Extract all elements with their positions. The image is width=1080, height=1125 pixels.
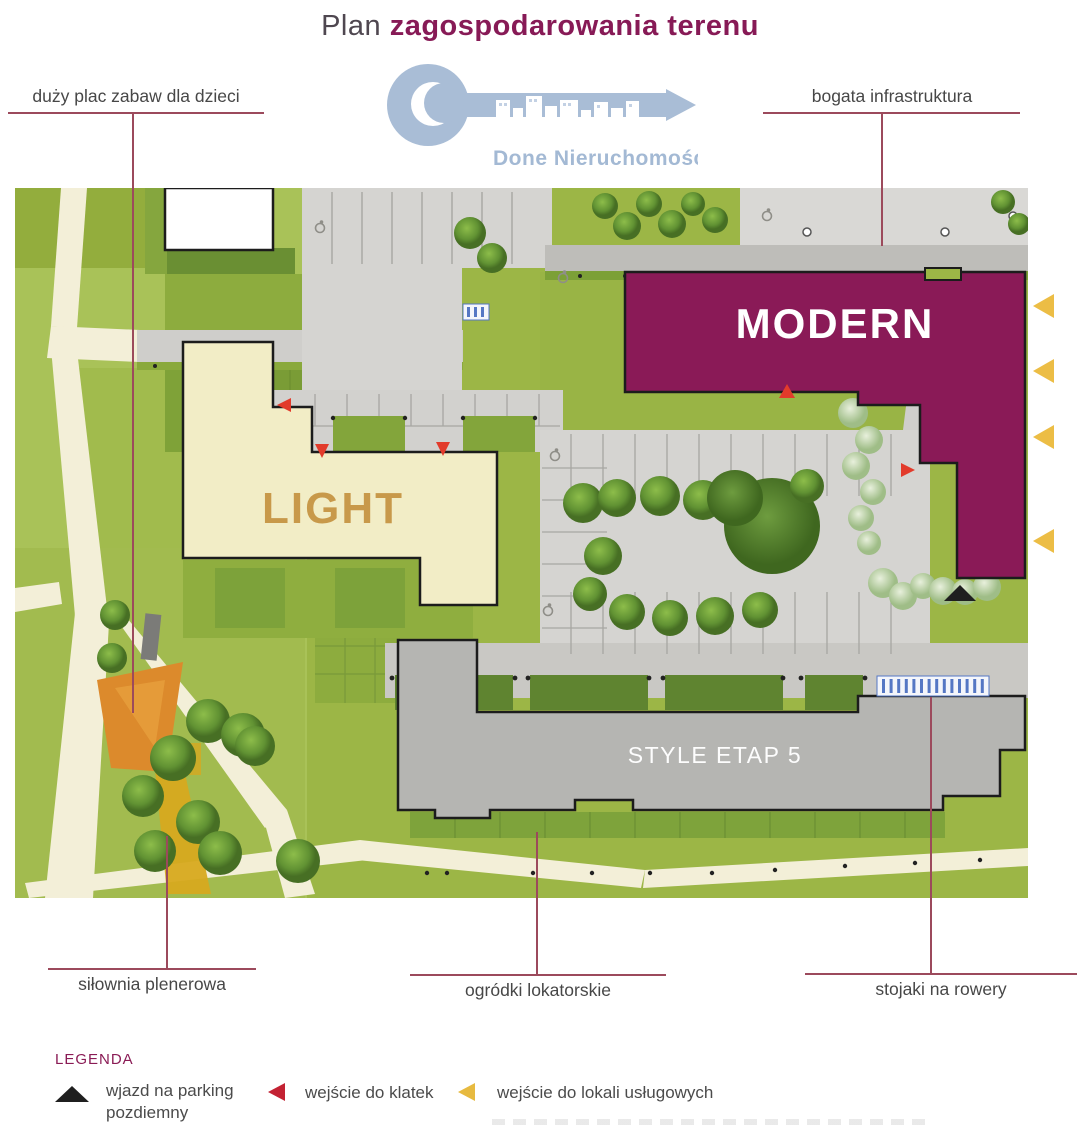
callout-infrastructure-line bbox=[763, 112, 1020, 114]
callout-playground-label: duży plac zabaw dla dzieci bbox=[0, 86, 272, 107]
legend-item-label: wjazd na parking pozdiemny bbox=[106, 1080, 264, 1125]
callout-bike-racks-pointer bbox=[930, 697, 932, 973]
service-entrance-arrow-icon bbox=[1033, 529, 1054, 553]
callout-infrastructure-label: bogata infrastruktura bbox=[763, 86, 1021, 107]
callout-tenant-gardens-pointer bbox=[536, 832, 538, 974]
site-plan-page: Plan zagospodarowania terenu bbox=[0, 0, 1080, 1125]
legend-item-label: wejście do lokali usługowych bbox=[497, 1082, 757, 1104]
key-city-logo-icon: Done Nieruchomości bbox=[383, 58, 698, 176]
callout-tenant-gardens-line bbox=[410, 974, 666, 976]
cropped-text-remnant bbox=[492, 1119, 930, 1125]
callout-outdoor-gym-label: siłownia plenerowa bbox=[40, 974, 264, 995]
service-entrance-arrow-icon bbox=[1033, 359, 1054, 383]
staircase-entrance-legend-icon bbox=[268, 1083, 285, 1101]
service-entrance-arrow-icon bbox=[1033, 294, 1054, 318]
callout-outdoor-gym-pointer bbox=[166, 836, 168, 968]
callout-playground-line bbox=[8, 112, 264, 114]
underground-parking-legend-icon bbox=[55, 1086, 89, 1102]
logo-wordmark: Done Nieruchomości bbox=[493, 147, 698, 170]
legend-title: LEGENDA bbox=[55, 1051, 134, 1068]
building-modern-notch bbox=[925, 268, 961, 280]
callout-infrastructure-pointer bbox=[881, 112, 883, 246]
service-entrance-legend-icon bbox=[458, 1083, 475, 1101]
callout-outdoor-gym-line bbox=[48, 968, 256, 970]
page-title-prefix: Plan bbox=[321, 10, 381, 42]
callout-bike-racks-label: stojaki na rowery bbox=[805, 979, 1077, 1000]
legend-item-label: wejście do klatek bbox=[305, 1082, 475, 1104]
site-plan-map: LIGHT MODERN STYLE ETAP 5 bbox=[15, 188, 1028, 898]
page-title: Plan zagospodarowania terenu bbox=[0, 10, 1080, 43]
developer-logo: Done Nieruchomości bbox=[383, 58, 698, 181]
building-style-label: STYLE ETAP 5 bbox=[628, 742, 802, 768]
building-modern-label: MODERN bbox=[736, 300, 935, 347]
callout-tenant-gardens-label: ogródki lokatorskie bbox=[415, 980, 661, 1001]
callout-bike-racks-line bbox=[805, 973, 1077, 975]
building-existing bbox=[165, 188, 273, 250]
callout-playground-pointer bbox=[132, 112, 134, 713]
page-title-emphasis: zagospodarowania terenu bbox=[390, 10, 759, 42]
building-light-label: LIGHT bbox=[262, 484, 404, 533]
service-entrance-arrow-icon bbox=[1033, 425, 1054, 449]
